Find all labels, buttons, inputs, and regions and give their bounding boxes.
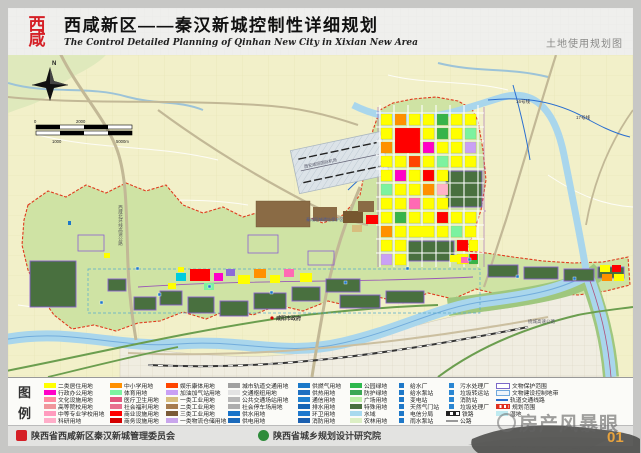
page-subtitle: The Control Detailed Planning of Qinhan …: [64, 38, 418, 48]
legend-swatch: [110, 390, 122, 395]
label-ring-expressway: 绕城高速公路: [528, 318, 555, 325]
legend-swatch: [44, 418, 56, 423]
org-institute-name: 陕西省城乡规划设计研究院: [273, 429, 381, 442]
legend-swatch: [110, 383, 122, 388]
legend-swatch: [496, 399, 508, 401]
legend-swatch: [166, 418, 178, 423]
legend-swatch: [44, 397, 56, 402]
legend-swatch: [496, 390, 510, 396]
label-metro-16: 16号线: [516, 98, 531, 105]
legend-swatch: [350, 390, 362, 395]
org-committee-name: 陕西省西咸新区秦汉新城管理委员会: [31, 429, 175, 442]
legend-swatch: [228, 418, 240, 423]
legend-swatch: [228, 404, 240, 409]
legend-item: 一类物流仓储用地: [166, 417, 228, 424]
legend-label: 消防用地: [312, 416, 335, 425]
legend-swatch: [298, 383, 310, 388]
legend-swatch: [166, 383, 178, 388]
compass-n-label: N: [52, 61, 56, 67]
org-committee: 陕西省西咸新区秦汉新城管理委员会: [16, 429, 175, 442]
legend-swatch: [166, 411, 178, 416]
legend-label: 科研用地: [58, 416, 81, 425]
committee-seal-icon: [16, 430, 27, 441]
legend-swatch: [350, 383, 362, 388]
legend-swatch: [44, 411, 56, 416]
legend-column: 二类居住用地行政办公用地文化设施用地高等院校用地中等专业学校用地科研用地: [44, 382, 110, 424]
legend-column: 中小学用地体育用地医疗卫生用地社会福利用地商业设施用地商务设施用地: [110, 382, 166, 424]
legend-swatch: [399, 404, 404, 409]
legend-item: 农林用地: [350, 417, 396, 424]
legend-item: 科研用地: [44, 417, 110, 424]
legend-swatch: [110, 411, 122, 416]
legend-swatch: [350, 404, 362, 409]
legend-swatch: [298, 397, 310, 402]
legend-swatch: [110, 397, 122, 402]
legend-swatch: [298, 404, 310, 409]
legend-swatch: [399, 383, 404, 388]
watermark-eye-icon: [497, 413, 516, 432]
legend-column: 给水厂给水泵站变电站天然气门站电信分局雨水泵站: [396, 382, 446, 424]
header: 西 咸 西咸新区——秦汉新城控制性详细规划 The Control Detail…: [8, 8, 633, 56]
legend-columns: 二类居住用地行政办公用地文化设施用地高等院校用地中等专业学校用地科研用地中小学用…: [44, 382, 570, 424]
legend-swatch: [298, 418, 310, 423]
watermark-text: 房产风暴眼: [519, 409, 619, 436]
planning-sheet: 西 咸 西咸新区——秦汉新城控制性详细规划 The Control Detail…: [0, 0, 641, 453]
planning-map: 西安咸阳国际机场: [8, 55, 633, 377]
page-number: 01: [607, 429, 624, 446]
legend-swatch: [350, 397, 362, 402]
watermark: 房产风暴眼: [497, 409, 619, 436]
legend-swatch: [298, 411, 310, 416]
legend-swatch: [496, 383, 510, 389]
legend-swatch: [399, 397, 404, 402]
legend-label: 供电用地: [242, 416, 265, 425]
xixian-seal-logo: 西 咸: [20, 13, 54, 50]
scale-tick: 1000: [52, 139, 62, 144]
legend-item: 商务设施用地: [110, 417, 166, 424]
legend-swatch: [110, 418, 122, 423]
label-metro-17: 17号线: [576, 114, 591, 121]
legend-swatch: [350, 418, 362, 423]
legend-label: 商务设施用地: [124, 416, 159, 425]
legend-column: 城市轨道交通用地交通枢纽用地公共交通场站用地社会停车场用地供水用地供电用地: [228, 382, 298, 424]
legend-title: 图 例: [18, 382, 36, 422]
legend-label: 农林用地: [364, 416, 387, 425]
org-institute: 陕西省城乡规划设计研究院: [258, 429, 381, 442]
legend-item: 消防用地: [298, 417, 350, 424]
legend-swatch: [228, 383, 240, 388]
legend-swatch: [350, 411, 362, 416]
title-block: 西咸新区——秦汉新城控制性详细规划 The Control Detailed P…: [64, 11, 418, 48]
label-city-gov: 咸阳市政府: [275, 315, 301, 322]
legend-column: 公园绿地防护绿地广场用地特殊用地水域农林用地: [350, 382, 396, 424]
legend-item: 雨水泵站: [396, 417, 446, 424]
seal-char-bottom: 咸: [29, 32, 46, 47]
legend-swatch: [228, 390, 240, 395]
legend-column: 污水处理厂垃圾转运站消防站垃圾处理厂铁路公路: [446, 382, 496, 424]
legend-item: 供电用地: [228, 417, 298, 424]
legend-swatch: [44, 404, 56, 409]
legend-swatch: [44, 390, 56, 395]
legend-swatch: [166, 397, 178, 402]
institute-logo-icon: [258, 430, 269, 441]
legend-title-char: 例: [18, 403, 36, 422]
legend-swatch: [449, 390, 454, 395]
legend-swatch: [399, 390, 404, 395]
label-relic-zone: 秦咸阳城遗址保护区: [306, 216, 344, 223]
legend-swatch: [399, 411, 404, 416]
label-north-ring: 西咸北环线高速公路: [118, 205, 124, 247]
legend-title-char: 图: [18, 382, 36, 401]
legend-column: 供燃气用地供热用地通信用地排水用地环卫用地消防用地: [298, 382, 350, 424]
legend-swatch: [446, 411, 460, 416]
legend-swatch: [298, 390, 310, 395]
legend-swatch: [449, 397, 454, 402]
legend-swatch: [228, 397, 240, 402]
legend-swatch: [44, 383, 56, 388]
map-panel: 西安咸阳国际机场: [8, 55, 633, 377]
legend-swatch: [166, 390, 178, 395]
page-title: 西咸新区——秦汉新城控制性详细规划: [64, 11, 418, 36]
legend-label: 一类物流仓储用地: [180, 416, 226, 425]
legend-swatch: [449, 383, 454, 388]
legend-column: 娱乐康体用地加油加气站用地一类工业用地二类工业用地三类工业用地一类物流仓储用地: [166, 382, 228, 424]
legend-swatch: [166, 404, 178, 409]
scale-tick: 5000m: [116, 139, 129, 144]
legend-swatch: [110, 404, 122, 409]
legend-swatch: [399, 418, 404, 423]
map-type-label: 土地使用规划图: [546, 35, 623, 50]
legend-swatch: [449, 404, 454, 409]
legend-swatch: [228, 411, 240, 416]
legend-swatch: [446, 420, 458, 422]
scale-tick: 2000: [76, 119, 86, 124]
legend-label: 雨水泵站: [410, 416, 433, 425]
